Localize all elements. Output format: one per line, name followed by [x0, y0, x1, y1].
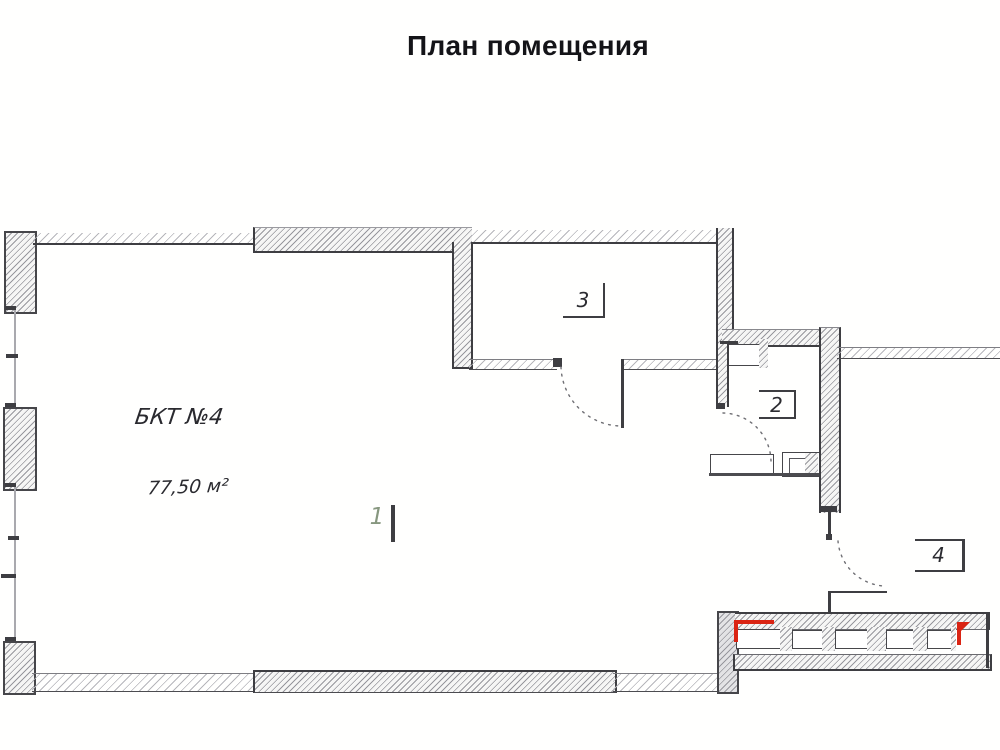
wall-room2-bottom-line — [709, 473, 821, 476]
window-tick — [8, 536, 19, 540]
room-marker-2: 2 — [759, 390, 796, 419]
wall-bottom-main — [253, 670, 617, 693]
glazing-mullion — [822, 627, 835, 651]
room-marker-3: 3 — [563, 283, 605, 318]
window-tick — [5, 637, 16, 641]
loggia-end-line — [986, 612, 989, 668]
glazing-mullion — [951, 627, 956, 651]
wall-stub-line — [828, 591, 831, 614]
wall-room3-left — [452, 242, 473, 369]
glazing-mullion — [867, 627, 886, 651]
glazing-mullion — [913, 627, 927, 651]
wall-bottom-right — [613, 673, 718, 692]
window-glass-line — [14, 310, 16, 408]
door-jamb — [716, 403, 725, 409]
wall-top-right — [470, 230, 718, 244]
unit-area-label: 77,50 м² — [147, 476, 230, 500]
door-swing-arc-room4 — [838, 541, 884, 586]
ledge-fixture — [710, 454, 774, 474]
wall-top-middle — [253, 227, 472, 253]
red-corner-mark — [734, 620, 738, 642]
room-marker-4: 4 — [915, 539, 965, 572]
wall-room4-top — [837, 347, 1000, 359]
wall-top-left — [33, 233, 253, 245]
wall-bottom-left — [32, 673, 253, 692]
window-tick — [1, 574, 16, 578]
window-tick — [5, 403, 16, 407]
door-jamb-line — [828, 510, 831, 537]
door-swing-arc-room3 — [561, 367, 620, 426]
glazing-panel — [792, 630, 824, 649]
wall-stub-line — [831, 591, 887, 593]
red-flag-mark — [961, 622, 970, 631]
room-marker-1: 1 — [364, 504, 390, 530]
glazing-panel — [835, 630, 869, 649]
loggia-wall-bottom — [733, 654, 992, 671]
page-title: План помещения — [0, 30, 1000, 62]
window-pier — [3, 407, 37, 491]
window-tick — [5, 483, 16, 487]
wall-stub — [621, 359, 624, 428]
room-marker-1-tick — [391, 505, 395, 542]
window-glass-line — [14, 487, 16, 642]
wall-room3-bottom-left — [469, 359, 557, 370]
unit-label: БКТ №4 — [133, 405, 225, 430]
sink-fixture — [724, 344, 761, 366]
window-tick — [6, 354, 18, 358]
door-hinge-dot — [826, 534, 832, 540]
glazing-panel — [736, 629, 782, 649]
toilet-fixture-hatch — [805, 453, 818, 474]
door-jamb — [553, 358, 562, 367]
floor-plan: План помещения — [0, 0, 1000, 750]
wall-room2-left — [716, 344, 729, 407]
glazing-mullion — [780, 627, 792, 651]
red-corner-mark — [734, 620, 774, 624]
wall-room3-bottom-right — [622, 359, 718, 370]
glazing-panel — [927, 630, 953, 649]
glazing-panel — [886, 630, 915, 649]
wall-stub — [759, 339, 768, 368]
window-tick — [5, 306, 16, 310]
